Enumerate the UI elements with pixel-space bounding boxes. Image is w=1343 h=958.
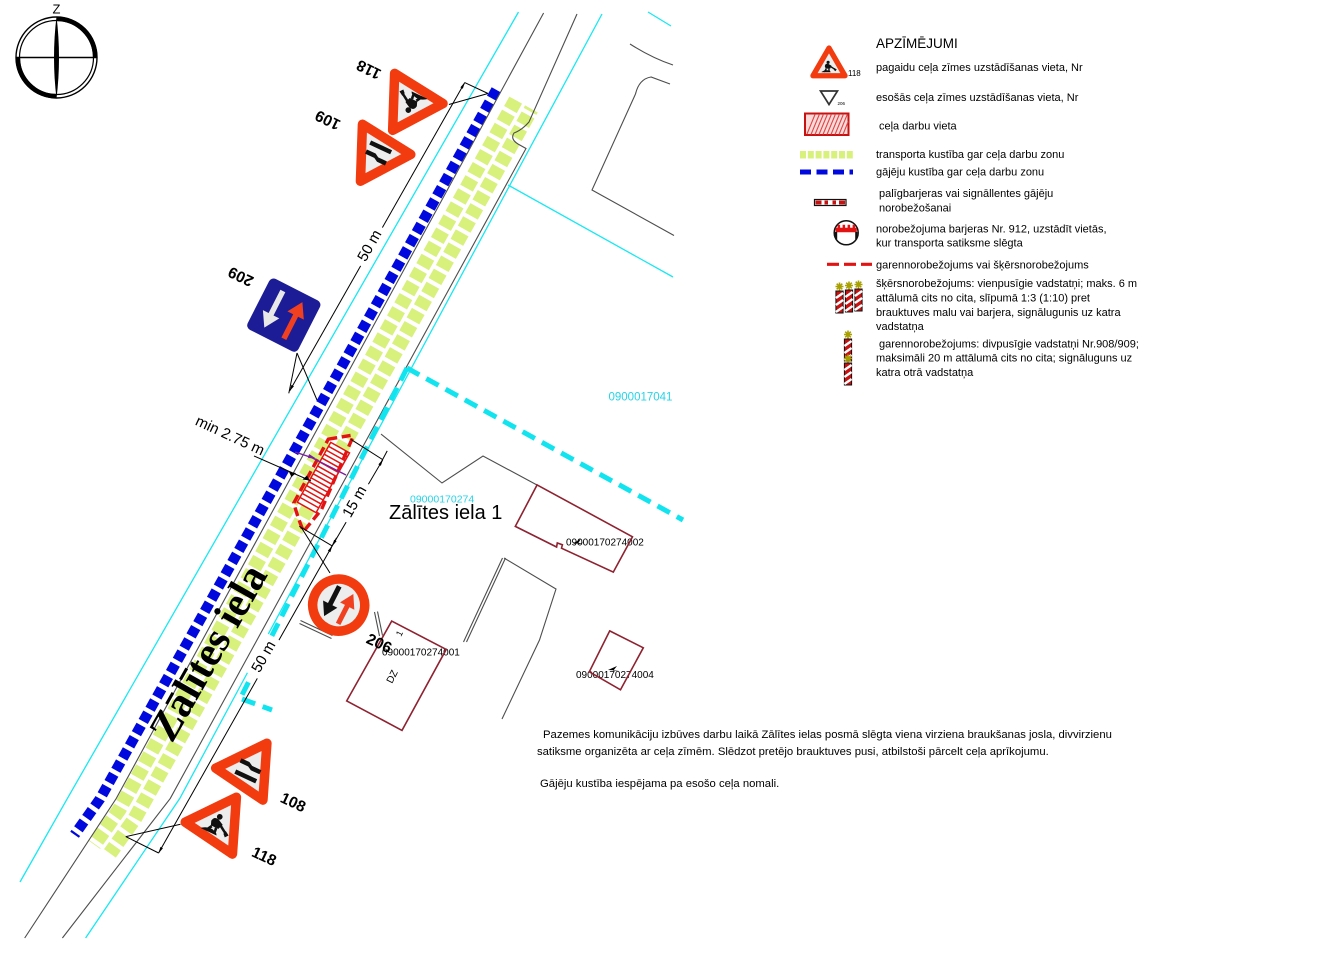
svg-text:norobežošanai: norobežošanai bbox=[879, 202, 951, 214]
svg-text:118: 118 bbox=[848, 69, 861, 78]
svg-text:0900017041: 0900017041 bbox=[609, 392, 673, 404]
svg-text:attālumā cits no cita, slīpumā: attālumā cits no cita, slīpumā 1:3 (1:10… bbox=[876, 293, 1090, 305]
svg-text:206: 206 bbox=[838, 101, 846, 106]
svg-text:esošās ceļa zīmes uzstādīšanas: esošās ceļa zīmes uzstādīšanas vieta, Nr bbox=[876, 92, 1079, 104]
svg-text:satiksme organizēta ar ceļa zī: satiksme organizēta ar ceļa zīmēm. Slēdz… bbox=[537, 746, 1049, 758]
svg-text:maksimāli 20 m attālumā cits n: maksimāli 20 m attālumā cits no cita; si… bbox=[876, 353, 1132, 365]
svg-text:09000170274004: 09000170274004 bbox=[576, 670, 654, 681]
svg-text:garennorobežojums vai šķērsnor: garennorobežojums vai šķērsnorobežojums bbox=[876, 259, 1089, 271]
svg-text:kur transporta satiksme slēgta: kur transporta satiksme slēgta bbox=[876, 238, 1024, 250]
svg-text:APZĪMĒJUMI: APZĪMĒJUMI bbox=[876, 36, 958, 51]
svg-text:vadstatņa: vadstatņa bbox=[876, 321, 925, 333]
svg-text:norobežojuma barjeras Nr. 912,: norobežojuma barjeras Nr. 912, uzstādīt … bbox=[876, 223, 1107, 235]
svg-text:09000170274001: 09000170274001 bbox=[382, 648, 460, 659]
svg-text:brauktuves malu vai barjera, s: brauktuves malu vai barjera, signāluguni… bbox=[876, 307, 1121, 319]
svg-text:katra otrā vadstatņa: katra otrā vadstatņa bbox=[876, 367, 974, 379]
svg-text:šķērsnorobežojums: vienpusīgie: šķērsnorobežojums: vienpusīgie vadstatņi… bbox=[876, 278, 1137, 290]
svg-text:Gājēju kustība iespējama pa es: Gājēju kustība iespējama pa esošo ceļa n… bbox=[540, 778, 779, 790]
svg-text:Zālītes iela 1: Zālītes iela 1 bbox=[389, 502, 502, 524]
svg-text:palīgbarjeras vai signāllentes: palīgbarjeras vai signāllentes gājēju bbox=[879, 188, 1053, 200]
svg-text:Pazemes komunikāciju izbūves d: Pazemes komunikāciju izbūves darbu laikā… bbox=[543, 729, 1112, 741]
svg-text:ceļa darbu vieta: ceļa darbu vieta bbox=[879, 121, 958, 133]
svg-text:garennorobežojums: divpusīgie: garennorobežojums: divpusīgie vadstatņi … bbox=[879, 338, 1139, 350]
svg-text:transporta kustība gar ceļa da: transporta kustība gar ceļa darbu zonu bbox=[876, 149, 1064, 161]
svg-text:gājēju kustība gar ceļa darbu: gājēju kustība gar ceļa darbu zonu bbox=[876, 167, 1044, 179]
svg-text:pagaidu ceļa zīmes uzstādīšana: pagaidu ceļa zīmes uzstādīšanas vieta, N… bbox=[876, 62, 1083, 74]
svg-text:Z: Z bbox=[53, 2, 61, 17]
